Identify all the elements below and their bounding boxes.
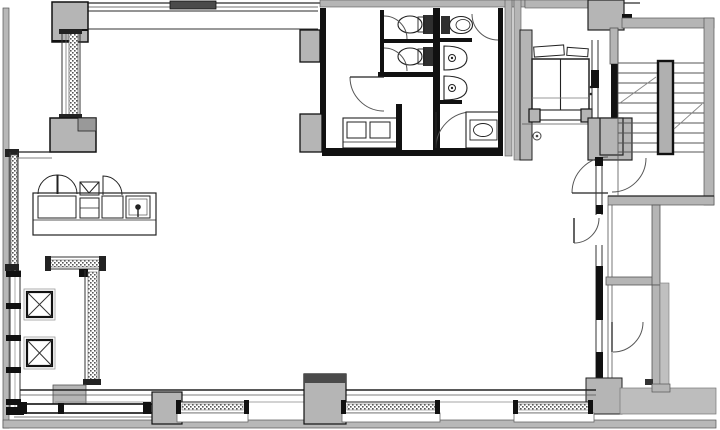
elevator-east-wall-seg <box>591 70 599 88</box>
toilet-3-tank <box>441 16 450 34</box>
terrace-post-2 <box>6 303 21 309</box>
window-unit-1-post-l <box>176 400 181 414</box>
call-button-dot <box>536 135 539 138</box>
window-unit-1-hatch <box>182 404 243 410</box>
floor-plan-page <box>0 0 720 430</box>
window-unit-3-hatch <box>519 404 589 410</box>
restroom-west-pier-lower <box>300 114 322 152</box>
elevator-door-sill <box>540 110 582 120</box>
urinal-1-dot <box>451 57 453 59</box>
main-east-wall-seg-2 <box>596 205 603 214</box>
terrace-post-1 <box>6 271 21 277</box>
stall-divider-wall <box>382 39 434 43</box>
elevator-machine-2 <box>567 47 589 56</box>
service-rooms-east-band-1 <box>652 205 660 285</box>
bottom-pier-b-cap <box>304 374 346 383</box>
stair-south-band <box>608 196 714 205</box>
terrace-post-4 <box>6 367 21 373</box>
terrace-bottom-post-1 <box>18 402 27 414</box>
window-unit-3-post-l <box>513 400 518 414</box>
restroom-west-pier-upper <box>300 30 320 62</box>
elevator-west-wall <box>520 30 532 160</box>
terrace-post-3 <box>6 335 21 341</box>
window-unit-1-post-r <box>244 400 249 414</box>
left-lower-block-notch <box>78 118 96 131</box>
window-unit-2-hatch <box>347 404 435 410</box>
urinal-2-dot <box>451 87 453 89</box>
elevator-north-block <box>588 0 624 30</box>
window-unit-3-sill <box>514 413 594 422</box>
terrace-bottom-window <box>18 404 152 413</box>
terrace-bottom-post-2 <box>58 403 64 414</box>
toilet-2-tank <box>423 47 433 66</box>
toilet-3-bowl <box>450 17 473 34</box>
restroom-right-divider <box>438 38 472 42</box>
stair-top-band <box>622 18 714 28</box>
elevator-machine-1 <box>534 45 565 57</box>
stair-left-wall-upper <box>610 28 618 64</box>
restroom-right-stub-wall <box>440 100 462 104</box>
terrace-partition-cap-s <box>83 379 101 385</box>
terrace-partition-stub <box>79 269 88 277</box>
left-window-hatch <box>69 33 78 117</box>
terrace-bottom-post-3 <box>143 402 151 414</box>
window-unit-2-sill <box>342 413 440 422</box>
restroom-left-bottom-wall-2 <box>402 150 436 156</box>
terrace-partition-v-hatch <box>88 272 97 382</box>
stair-right-band <box>704 18 714 205</box>
stair-left-block <box>600 118 623 155</box>
service-room-divider <box>606 277 654 285</box>
window-unit-2-post-l <box>341 400 346 414</box>
bottom-right-step <box>652 384 670 392</box>
restroom-top-band-left <box>320 0 525 7</box>
stair-left-wall-black <box>611 64 618 118</box>
window-unit-1-sill <box>177 413 248 422</box>
terrace-partition-cap-w <box>45 256 51 271</box>
stair-center-rail <box>658 61 673 154</box>
window-unit-2-post-r <box>435 400 440 414</box>
toilet-1-tank <box>423 15 433 34</box>
restroom-right-bottom-wall <box>440 148 502 156</box>
service-rooms-east-band-2 <box>652 285 660 387</box>
restroom-left-bottom-wall <box>322 148 402 156</box>
top-mullion-panel <box>170 1 216 9</box>
elevator-jamb-left <box>529 109 540 122</box>
left-wall-cap-low <box>5 264 19 271</box>
main-east-wall-seg-1 <box>595 157 603 166</box>
service-rooms-outer-band <box>660 283 669 387</box>
main-east-wall-seg-3 <box>596 266 603 320</box>
left-wall-hatch <box>11 155 17 267</box>
terrace-partition-cap-e <box>99 256 106 271</box>
shaft-strip-1 <box>505 0 512 156</box>
restroom-top-band-right <box>525 0 589 8</box>
left-window-cap-top <box>59 29 82 34</box>
restroom-right-east-wall <box>498 8 503 156</box>
terrace-partition-h-hatch <box>50 260 102 267</box>
outer-left-band <box>3 8 9 428</box>
window-unit-3-post-r <box>588 400 593 414</box>
floor-plan-svg <box>0 0 720 430</box>
stall-bottom-wall <box>378 72 438 77</box>
